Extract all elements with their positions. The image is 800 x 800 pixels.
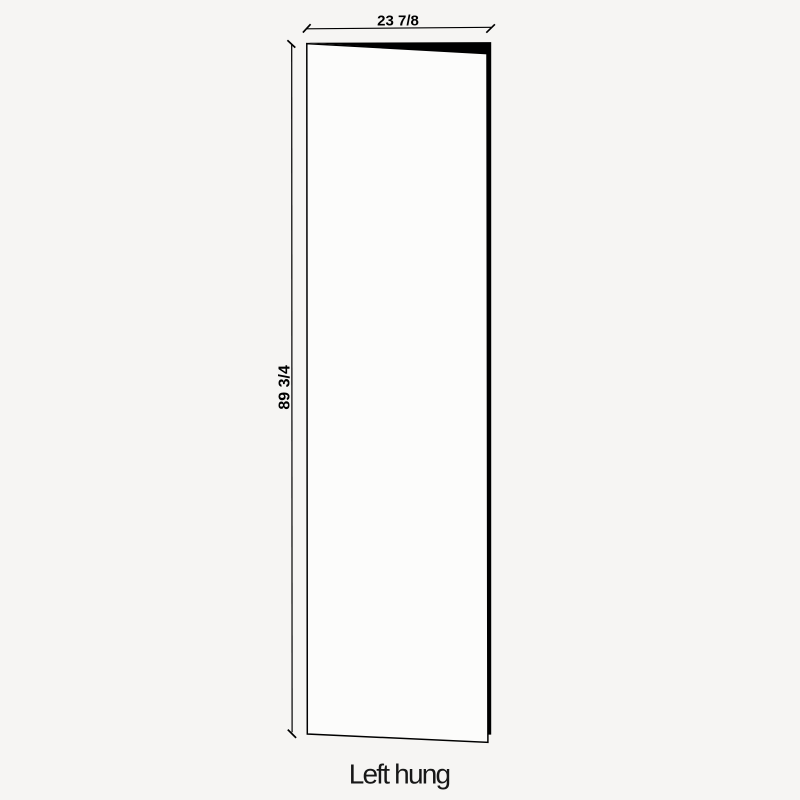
svg-text:Left hung: Left hung xyxy=(349,758,450,789)
svg-text:23 7/8: 23 7/8 xyxy=(377,13,419,30)
svg-text:89 3/4: 89 3/4 xyxy=(277,365,294,410)
